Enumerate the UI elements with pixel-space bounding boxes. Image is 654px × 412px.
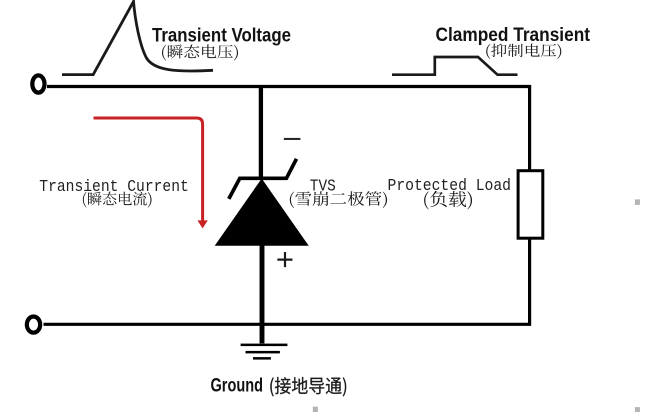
svg-text:Transient Voltage: Transient Voltage [152, 25, 291, 47]
svg-text:Protected Load: Protected Load [388, 176, 512, 195]
svg-text:Clamped Transient: Clamped Transient [436, 24, 591, 46]
svg-text:Ground: Ground [211, 376, 264, 397]
svg-text:TVS: TVS [310, 178, 336, 197]
svg-text:Transient Current: Transient Current [39, 178, 189, 197]
